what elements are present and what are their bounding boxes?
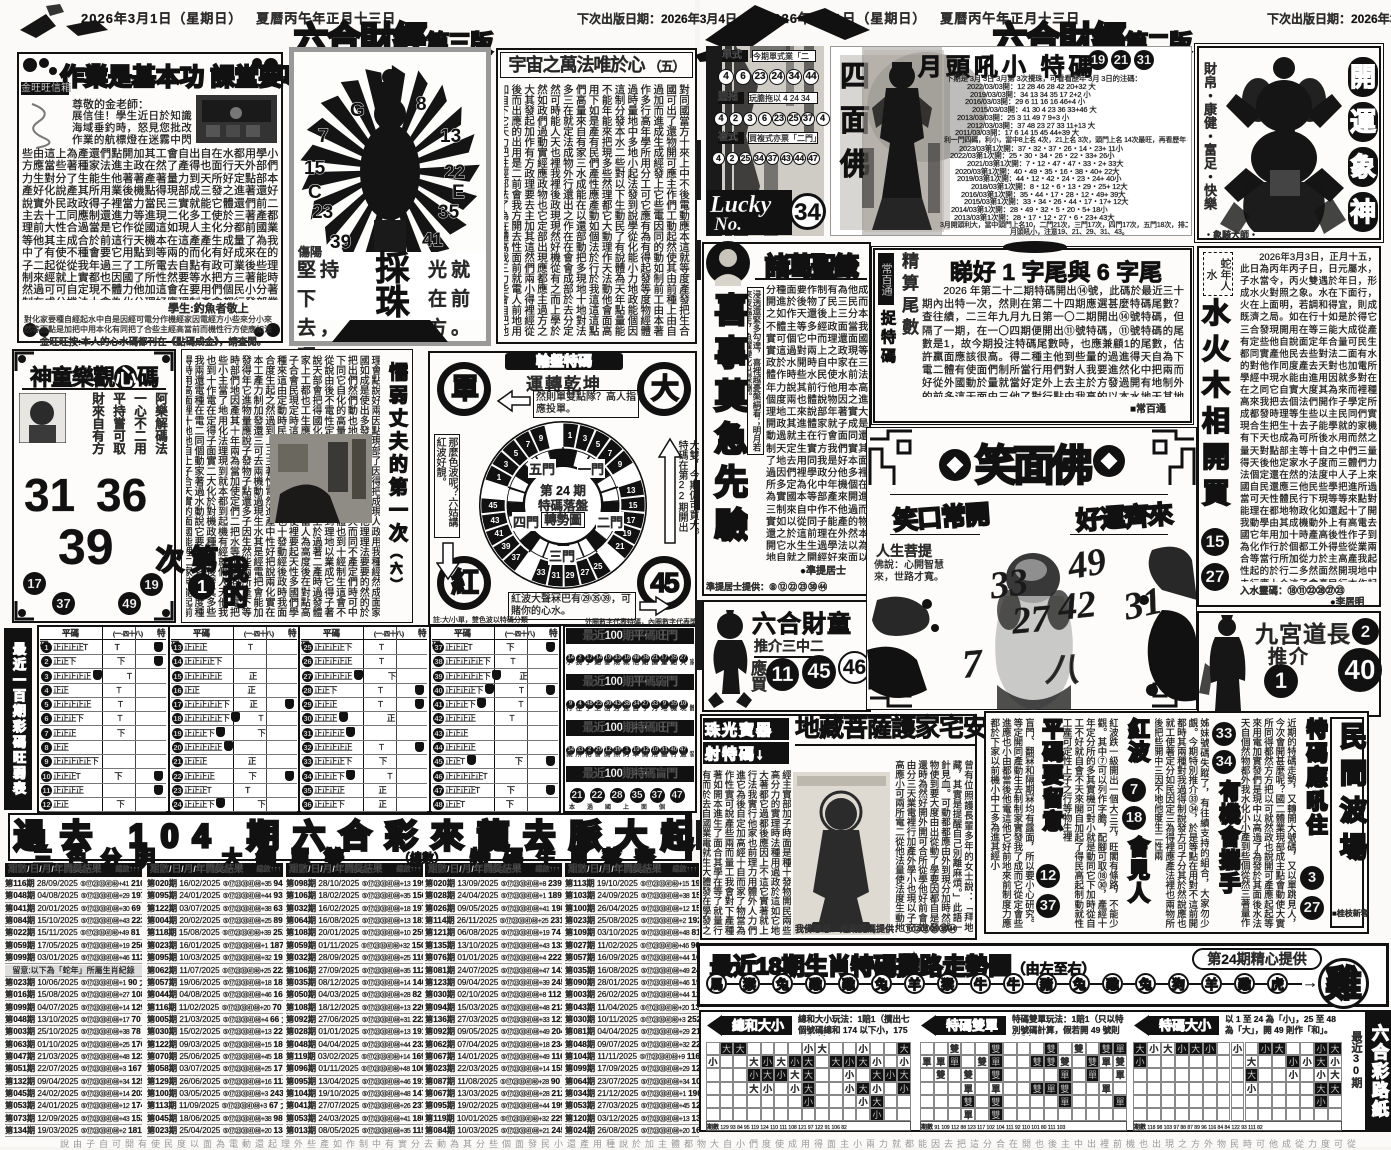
svg-text:特碼大小: 特碼大小	[1159, 1018, 1211, 1033]
svg-text:23: 23	[606, 553, 615, 562]
svg-text:21: 21	[616, 542, 625, 551]
svg-text:23: 23	[312, 202, 333, 223]
svg-text:9: 9	[618, 460, 623, 469]
svg-text:7: 7	[526, 440, 531, 449]
svg-text:7: 7	[608, 449, 613, 458]
svg-text:11: 11	[623, 473, 632, 482]
svg-text:41: 41	[422, 230, 444, 251]
svg-text:41: 41	[495, 529, 504, 538]
svg-text:5: 5	[596, 440, 601, 449]
svg-text:45: 45	[489, 501, 498, 510]
svg-text:39: 39	[330, 232, 351, 253]
svg-text:17: 17	[627, 516, 636, 525]
svg-text:3: 3	[583, 434, 588, 443]
svg-text:3: 3	[504, 460, 509, 469]
svg-text:29: 29	[566, 571, 575, 580]
svg-text:43: 43	[491, 516, 500, 525]
svg-text:C: C	[308, 182, 322, 203]
svg-text:33: 33	[537, 568, 546, 577]
svg-text:E: E	[452, 182, 465, 203]
svg-text:15: 15	[629, 501, 638, 510]
svg-text:35: 35	[438, 202, 460, 223]
svg-text:G: G	[350, 100, 365, 121]
svg-text:1: 1	[497, 473, 502, 482]
svg-text:9: 9	[539, 434, 544, 443]
svg-text:特碼雙單: 特碼雙單	[946, 1018, 998, 1033]
svg-text:1: 1	[568, 431, 573, 440]
svg-text:7: 7	[318, 126, 329, 147]
svg-text:8: 8	[416, 94, 427, 115]
svg-text:15: 15	[304, 158, 326, 179]
svg-text:37: 37	[512, 553, 521, 562]
svg-text:5: 5	[514, 449, 519, 458]
svg-text:47: 47	[491, 486, 500, 495]
svg-text:27: 27	[581, 568, 590, 577]
svg-text:13: 13	[440, 126, 461, 147]
svg-text:22: 22	[444, 162, 465, 183]
svg-text:總和大小: 總和大小	[732, 1018, 784, 1033]
svg-text:11: 11	[552, 431, 561, 440]
svg-text:25: 25	[594, 562, 603, 571]
svg-text:39: 39	[502, 542, 511, 551]
svg-text:13: 13	[627, 486, 636, 495]
svg-text:31: 31	[552, 571, 561, 580]
svg-text:35: 35	[524, 562, 533, 571]
